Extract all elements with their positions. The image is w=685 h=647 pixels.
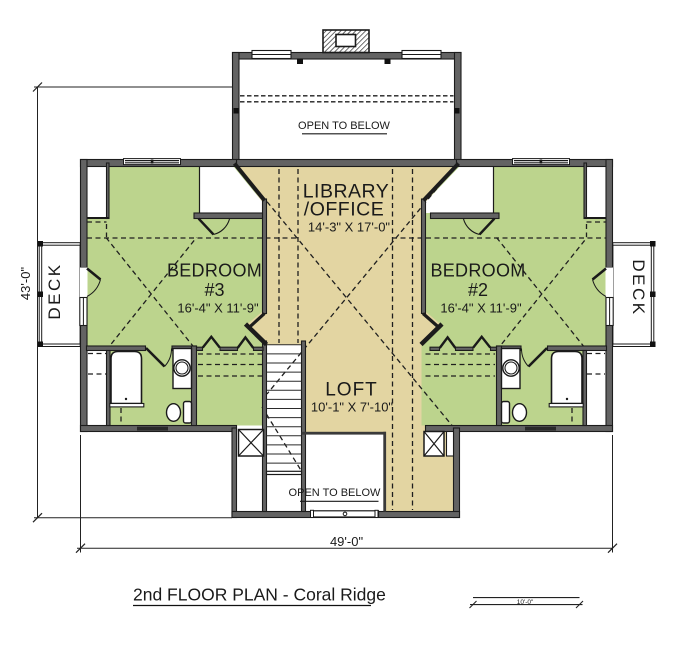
svg-text:10'-0": 10'-0" xyxy=(517,599,534,606)
svg-text:OPEN TO BELOW: OPEN TO BELOW xyxy=(298,120,391,132)
svg-text:10'-1" X 7'-10": 10'-1" X 7'-10" xyxy=(311,400,394,415)
svg-text:BEDROOM: BEDROOM xyxy=(167,261,262,281)
svg-text:14'-3" X 17'-0": 14'-3" X 17'-0" xyxy=(308,220,391,235)
svg-text:/OFFICE: /OFFICE xyxy=(304,199,384,221)
svg-text:2nd FLOOR PLAN - Coral Ridge: 2nd FLOOR PLAN - Coral Ridge xyxy=(133,585,386,605)
svg-text:#3: #3 xyxy=(204,280,224,300)
svg-text:16'-4" X 11'-9": 16'-4" X 11'-9" xyxy=(177,301,259,316)
svg-text:BEDROOM: BEDROOM xyxy=(430,261,525,281)
svg-text:49'-0": 49'-0" xyxy=(330,534,364,549)
svg-text:DECK: DECK xyxy=(45,262,64,319)
svg-text:DECK: DECK xyxy=(629,259,648,316)
svg-text:16'-4" X 11'-9": 16'-4" X 11'-9" xyxy=(440,301,522,316)
svg-text:#2: #2 xyxy=(468,280,488,300)
svg-text:43'-0": 43'-0" xyxy=(18,267,33,301)
svg-text:OPEN TO BELOW: OPEN TO BELOW xyxy=(289,487,382,499)
svg-text:LOFT: LOFT xyxy=(325,380,378,401)
